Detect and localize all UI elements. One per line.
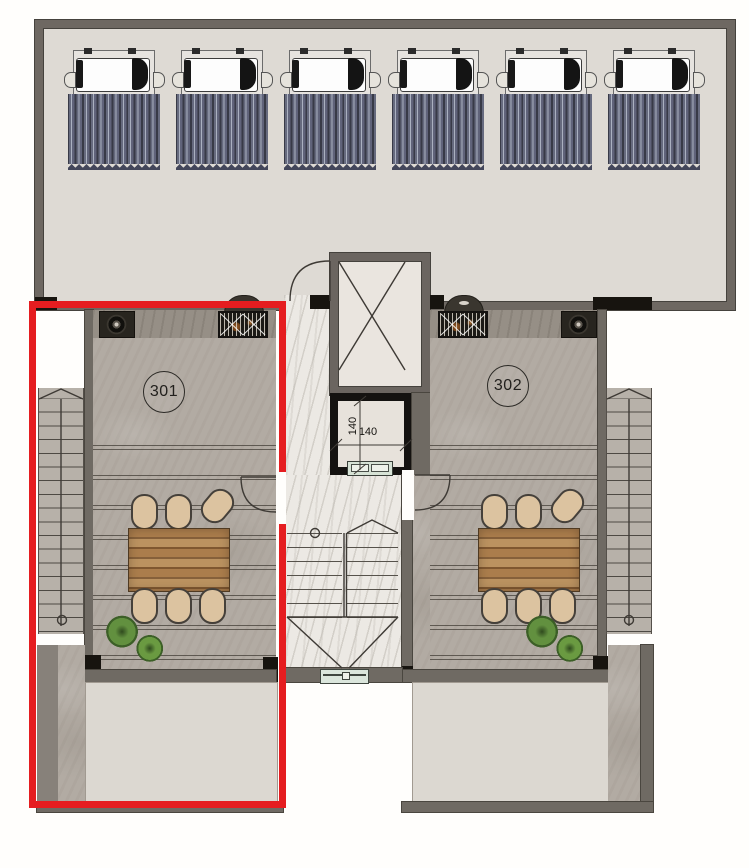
chair — [481, 588, 508, 624]
speaker-cone — [568, 314, 589, 335]
panel-mount-clip — [344, 48, 352, 54]
tank-cap-right — [132, 58, 148, 90]
lower-terrace-302-outer-wall — [641, 645, 653, 810]
panel-mount-clip — [236, 48, 244, 54]
panel-mount-clip — [408, 48, 416, 54]
dining-table-302 — [478, 528, 580, 592]
solar-panel-row — [0, 0, 749, 220]
wall-mid-right — [412, 393, 430, 475]
panel-bracket-right — [585, 72, 597, 88]
stair-flight-right — [347, 533, 398, 619]
vacuum-tubes — [176, 94, 268, 164]
corridor-floor-upper — [284, 295, 330, 480]
vacuum-tube-tips — [608, 164, 700, 170]
solar-collector-panel — [68, 48, 160, 170]
solar-collector-panel — [176, 48, 268, 170]
panel-mount-clip — [84, 48, 92, 54]
vacuum-tube-tips — [500, 164, 592, 170]
panel-mount-clip — [192, 48, 200, 54]
panel-mount-clip — [128, 48, 136, 54]
stair-flight-left — [287, 533, 342, 619]
vacuum-tubes — [392, 94, 484, 164]
floor-plan-canvas: 140 140 301 302 — [0, 0, 749, 868]
window-mullion — [342, 672, 350, 680]
vacuum-tubes — [284, 94, 376, 164]
tank-cap-right — [348, 58, 364, 90]
potted-plants-302 — [516, 610, 600, 670]
panel-bracket-right — [477, 72, 489, 88]
tank-cap-left — [76, 60, 83, 88]
panel-bracket-left — [64, 72, 76, 88]
tank-cap-left — [292, 60, 299, 88]
doorway-gap-302 — [402, 470, 414, 520]
selected-unit-outline — [29, 301, 286, 808]
panel-mount-clip — [452, 48, 460, 54]
panel-mount-clip — [300, 48, 308, 54]
doorway-gap-301 — [276, 472, 286, 524]
shaft-junction-left — [310, 295, 330, 309]
vacuum-tube-tips — [176, 164, 268, 170]
panel-mount-clip — [560, 48, 568, 54]
vacuum-tube-tips — [68, 164, 160, 170]
elevator-shaft — [330, 253, 430, 395]
panel-bracket-left — [496, 72, 508, 88]
dimension-label-horizontal: 140 — [353, 425, 383, 439]
tank-cap-left — [400, 60, 407, 88]
hood-knob — [459, 301, 469, 305]
tank-cap-left — [184, 60, 191, 88]
tank-cap-left — [616, 60, 623, 88]
ceiling-speaker-302 — [562, 312, 596, 337]
lower-terrace-302-side-strip — [608, 645, 641, 802]
panel-mount-clip — [516, 48, 524, 54]
elevator-door-leaf — [371, 464, 389, 472]
vacuum-tubes — [500, 94, 592, 164]
chair — [515, 494, 542, 530]
tank-cap-right — [456, 58, 472, 90]
tank-cap-right — [672, 58, 688, 90]
lower-terrace-302 — [412, 682, 610, 804]
panel-mount-clip — [668, 48, 676, 54]
solar-collector-panel — [392, 48, 484, 170]
panel-bracket-right — [693, 72, 705, 88]
shaft-junction-right — [430, 295, 444, 309]
external-stairs-right — [606, 388, 652, 634]
solar-collector-panel — [608, 48, 700, 170]
panel-bracket-left — [604, 72, 616, 88]
lower-terrace-302-bottom-wall — [402, 802, 653, 812]
chair — [481, 494, 508, 530]
roof-wall-black-right — [593, 297, 652, 310]
panel-bracket-left — [388, 72, 400, 88]
stair-window — [320, 669, 369, 684]
panel-bracket-right — [153, 72, 165, 88]
unit302-terrace-floor-ext — [412, 475, 430, 682]
panel-bracket-right — [261, 72, 273, 88]
unit-label-302[interactable]: 302 — [487, 365, 529, 407]
tank-cap-left — [508, 60, 515, 88]
vacuum-tubes — [68, 94, 160, 164]
vacuum-tubes — [608, 94, 700, 164]
elevator-door-symbol — [347, 461, 393, 476]
solar-collector-panel — [500, 48, 592, 170]
bbq-grill-302 — [438, 311, 488, 338]
vacuum-tube-tips — [284, 164, 376, 170]
vacuum-tube-tips — [392, 164, 484, 170]
panel-bracket-right — [369, 72, 381, 88]
tank-cap-right — [240, 58, 256, 90]
unit-302-number: 302 — [494, 377, 522, 395]
panel-mount-clip — [624, 48, 632, 54]
solar-collector-panel — [284, 48, 376, 170]
panel-bracket-left — [280, 72, 292, 88]
panel-bracket-left — [172, 72, 184, 88]
tank-cap-right — [564, 58, 580, 90]
elevator-door-leaf — [351, 464, 369, 472]
